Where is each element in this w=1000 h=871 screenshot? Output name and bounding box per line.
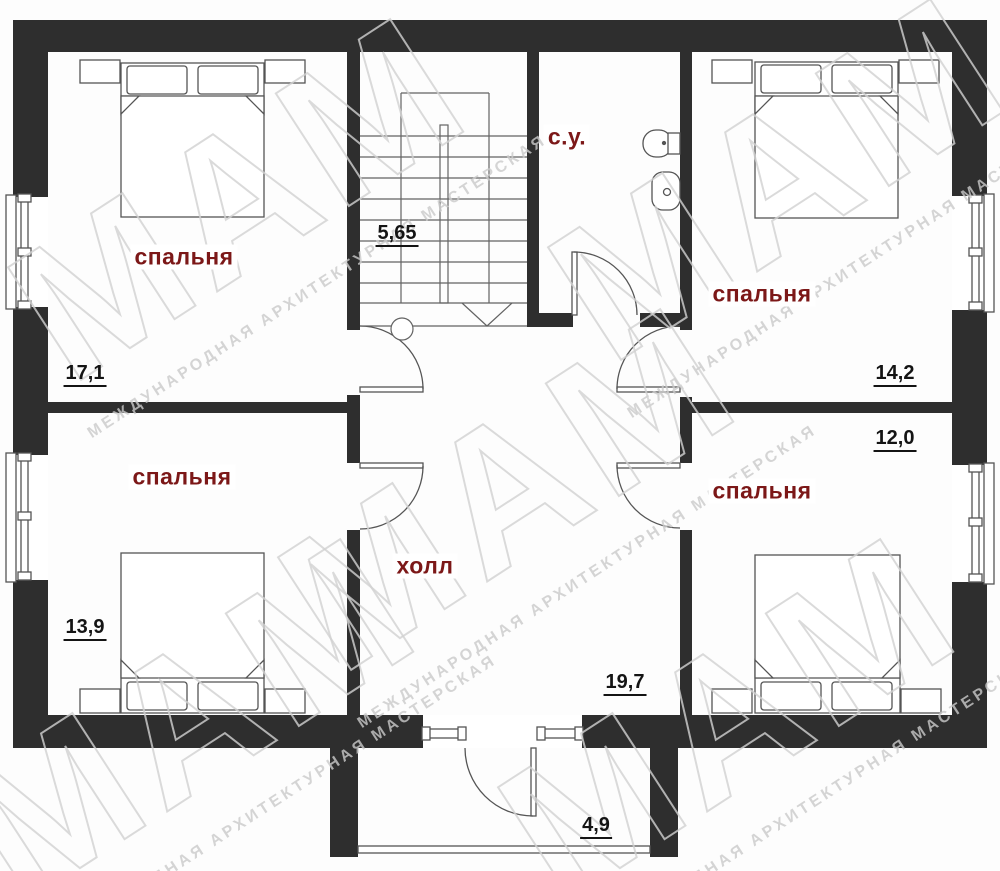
wall-bath-right [680, 52, 692, 330]
nightstand [712, 60, 752, 83]
pillow [198, 66, 258, 94]
door-bedroom-bottom-right [617, 463, 680, 528]
sink-icon [652, 172, 680, 210]
wall-hall-left-lower [347, 530, 360, 715]
floor-plan-drawing [0, 0, 1000, 871]
toilet-icon [643, 130, 680, 157]
pillow [761, 682, 821, 710]
wall-bath-bottom-left [527, 313, 573, 327]
wall-divider-left [48, 402, 360, 413]
bed-bottom-right [712, 555, 941, 713]
area-bedroom-top-left: 17,1 [64, 363, 107, 387]
area-balcony: 4,9 [580, 815, 612, 839]
nightstand [899, 60, 939, 83]
wall-balcony-left [330, 748, 358, 857]
room-label-bedroom-bottom-left: спальня [128, 465, 235, 490]
wall-stair-right [527, 52, 539, 313]
door-bedroom-bottom-left [360, 463, 423, 529]
balcony-front-glazing [358, 846, 650, 853]
area-bedroom-bottom-left: 13,9 [64, 617, 107, 641]
stair-newel-post [391, 318, 413, 340]
furniture [80, 60, 941, 713]
area-bedroom-bottom-right: 12,0 [874, 428, 917, 452]
floor-plan: спальня с.у. спальня спальня холл спальн… [0, 0, 1000, 871]
room-label-bathroom: с.у. [544, 125, 590, 150]
wall-top [13, 20, 987, 52]
wall-hall-right-lower [680, 530, 692, 715]
bed-top-right [712, 60, 939, 218]
door-bedroom-top-left [360, 326, 423, 392]
door-balcony [465, 748, 536, 816]
bathroom-fixtures [643, 130, 680, 210]
nightstand [265, 689, 305, 713]
wall-divider-right [680, 402, 987, 413]
area-hall: 19,7 [604, 672, 647, 696]
wall-left [13, 20, 48, 748]
area-bathroom: 5,65 [376, 223, 419, 247]
door-bedroom-top-right [617, 326, 680, 392]
room-label-bedroom-bottom-right: спальня [708, 479, 815, 504]
nightstand [80, 689, 120, 713]
pillow [761, 65, 821, 93]
bed-bottom-left [80, 553, 305, 713]
bed-top-left [80, 60, 305, 217]
room-label-hall: холл [393, 554, 458, 579]
area-bedroom-top-right: 14,2 [874, 363, 917, 387]
pillow [127, 66, 187, 94]
window-balcony-right [537, 727, 583, 740]
room-label-bedroom-top-right: спальня [708, 282, 815, 307]
staircase [360, 93, 527, 340]
wall-right [952, 20, 987, 748]
nightstand [712, 689, 752, 713]
nightstand [80, 60, 120, 83]
pillow [832, 682, 892, 710]
pillow [832, 65, 892, 93]
pillow [198, 682, 258, 710]
stair-direction-arrow [462, 303, 512, 326]
wall-balcony-right [650, 748, 678, 857]
window-balcony-left [422, 727, 466, 740]
wall-stair-left [347, 52, 360, 330]
door-bathroom [572, 252, 637, 315]
stair-rail [440, 125, 448, 303]
nightstand [901, 689, 941, 713]
windows [6, 194, 994, 853]
nightstand [265, 60, 305, 83]
pillow [127, 682, 187, 710]
room-label-bedroom-top-left: спальня [130, 245, 237, 270]
